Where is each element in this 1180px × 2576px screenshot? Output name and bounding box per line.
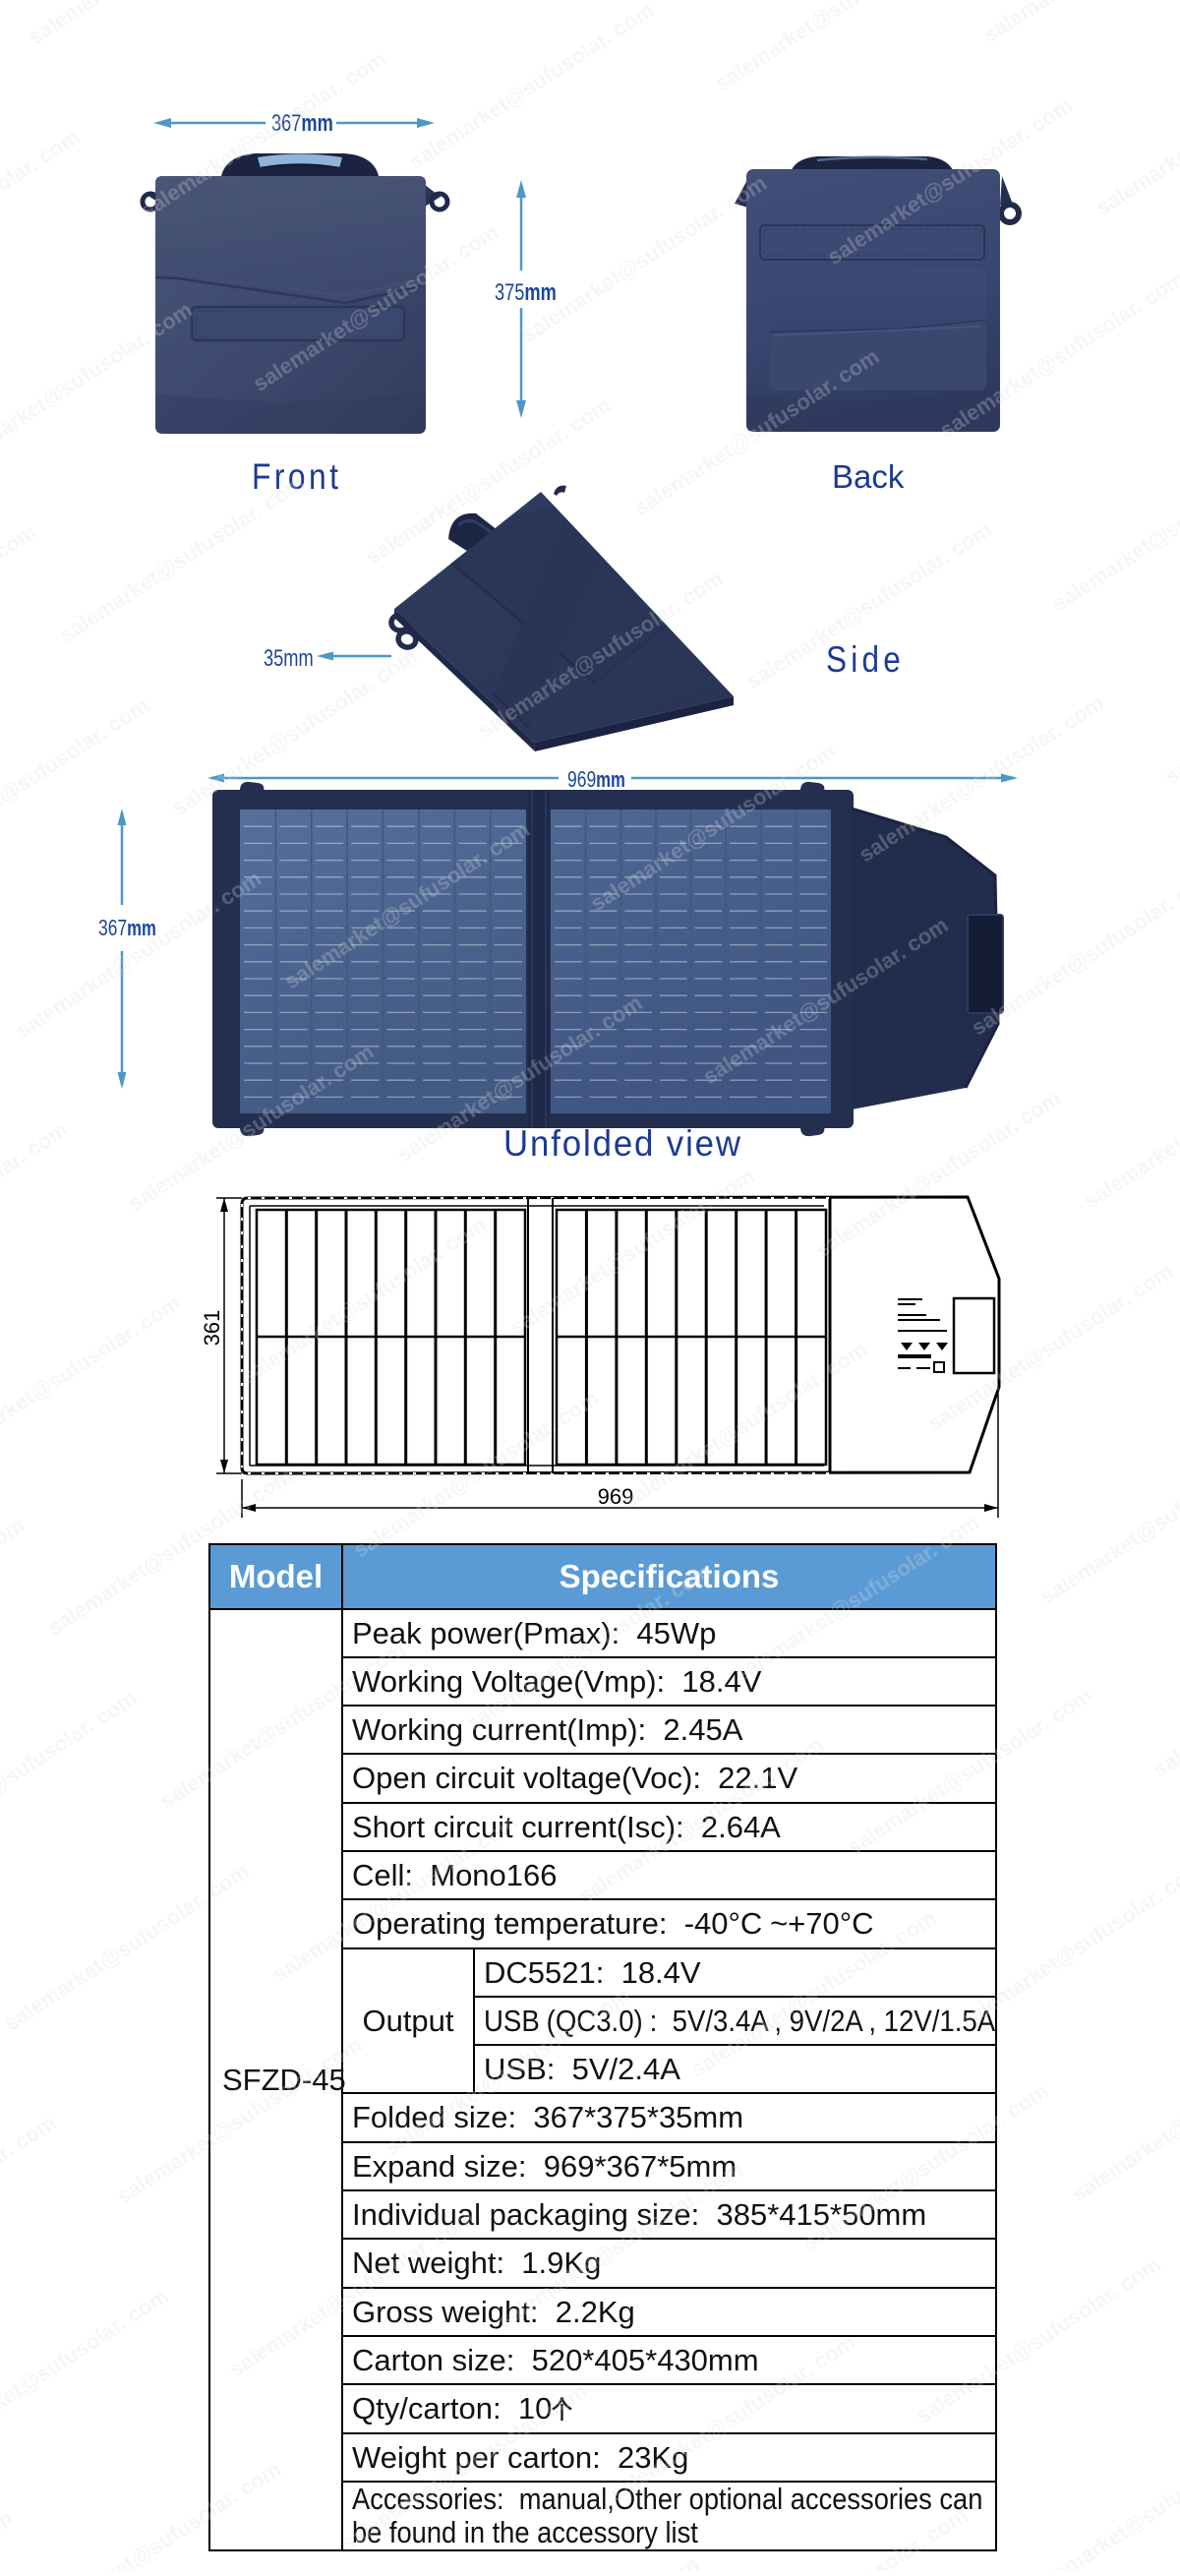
svg-text:969: 969	[598, 1484, 634, 1509]
svg-text:361: 361	[200, 1310, 224, 1347]
